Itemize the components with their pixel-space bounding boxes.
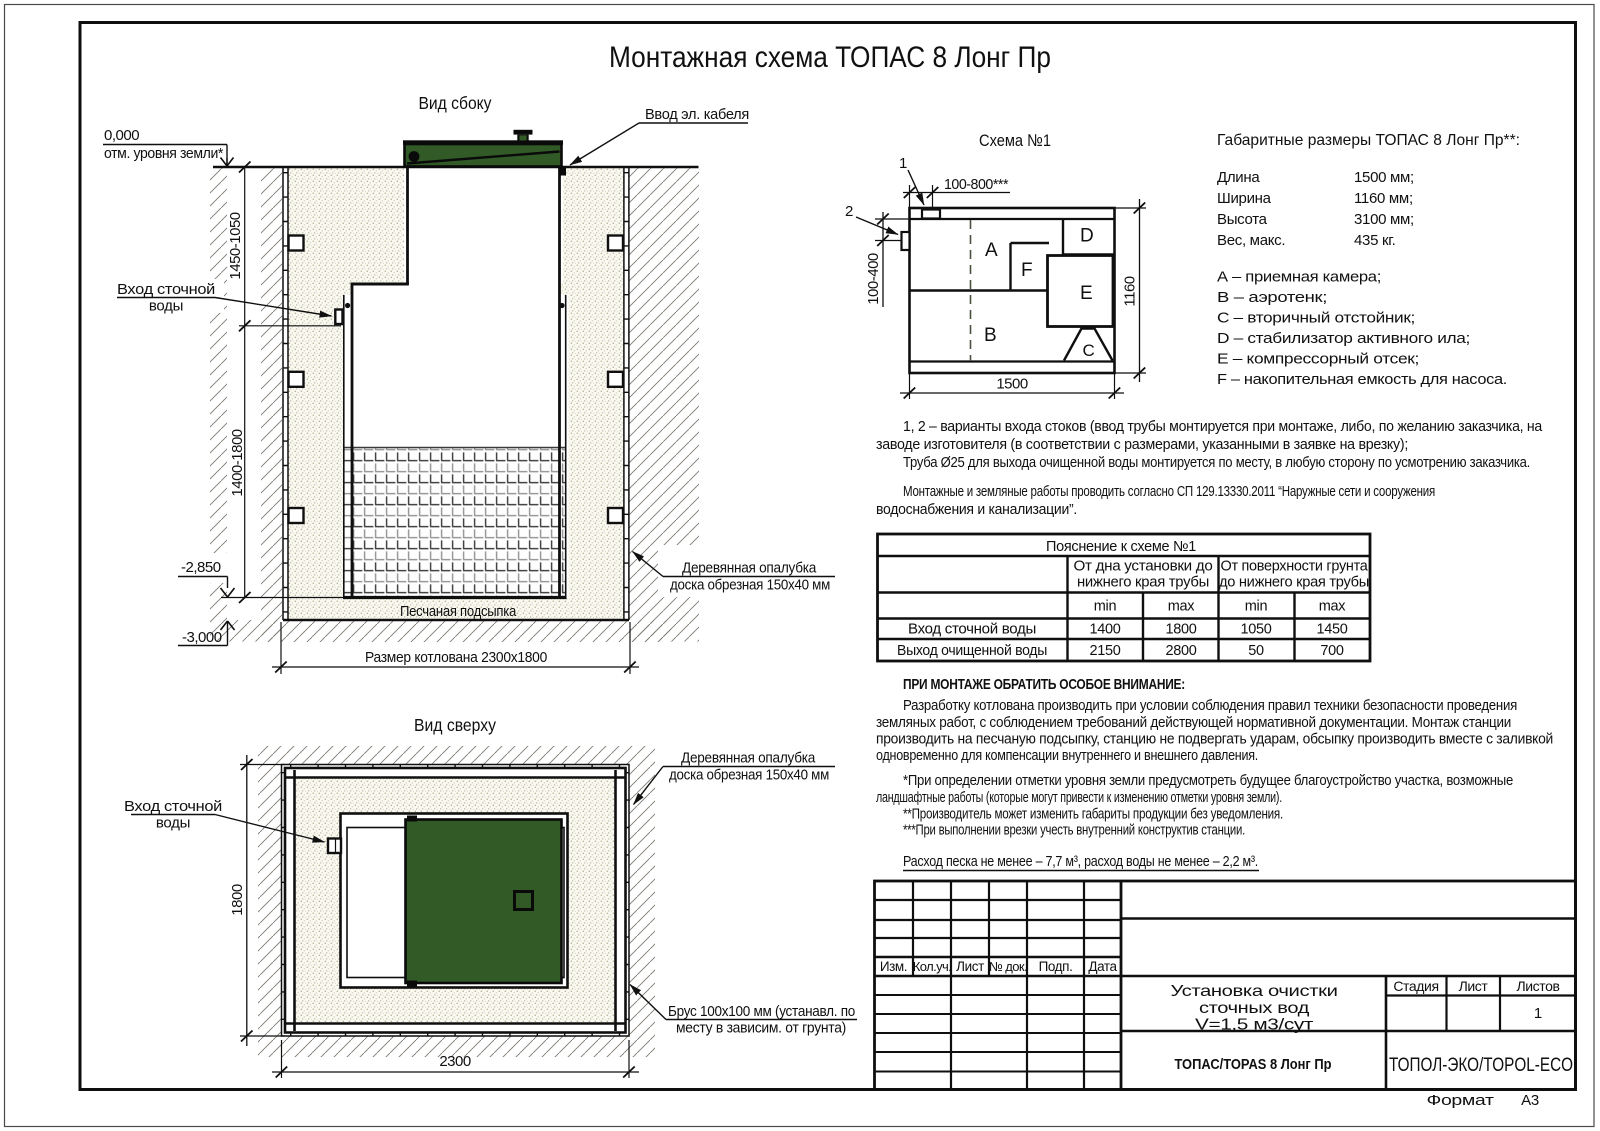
svg-text:1: 1 bbox=[1534, 1005, 1542, 1022]
svg-text:В – аэротенк;: В – аэротенк; bbox=[1217, 289, 1327, 306]
svg-text:ТОПОЛ-ЭКО/TOPOL-ECO: ТОПОЛ-ЭКО/TOPOL-ECO bbox=[1389, 1054, 1573, 1076]
svg-text:месту в зависим. от грунта): месту в зависим. от грунта) bbox=[676, 1020, 846, 1037]
svg-text:доска обрезная 150х40 мм: доска обрезная 150х40 мм bbox=[670, 577, 830, 594]
svg-text:50: 50 bbox=[1248, 643, 1264, 659]
svg-text:От поверхности грунта: От поверхности грунта bbox=[1221, 559, 1369, 575]
svg-text:3100 мм;: 3100 мм; bbox=[1354, 211, 1414, 228]
svg-text:1160: 1160 bbox=[1122, 276, 1139, 306]
svg-text:до нижнего края трубы: до нижнего края трубы bbox=[1219, 575, 1369, 591]
svg-text:№ док.: № док. bbox=[989, 959, 1027, 974]
svg-text:отм. уровня земли*: отм. уровня земли* bbox=[104, 146, 224, 162]
svg-text:1500: 1500 bbox=[996, 376, 1028, 393]
svg-text:D – стабилизатор активного ила: D – стабилизатор активного ила; bbox=[1217, 330, 1470, 347]
svg-text:-3,000: -3,000 bbox=[182, 629, 222, 646]
svg-text:1800: 1800 bbox=[1165, 622, 1196, 638]
svg-text:водоснабжения и канализации”.: водоснабжения и канализации”. bbox=[876, 501, 1077, 518]
svg-text:Вид сверху: Вид сверху bbox=[414, 715, 496, 735]
svg-text:V=1,5 м3/сут: V=1,5 м3/сут bbox=[1195, 1017, 1314, 1034]
svg-text:Вход сточной: Вход сточной bbox=[124, 798, 222, 815]
svg-text:С – вторичный отстойник;: С – вторичный отстойник; bbox=[1217, 310, 1415, 327]
svg-text:1800: 1800 bbox=[229, 884, 246, 916]
svg-text:max: max bbox=[1168, 599, 1196, 615]
svg-text:Лист: Лист bbox=[1459, 978, 1489, 994]
svg-text:0,000: 0,000 bbox=[104, 127, 139, 144]
svg-text:B: B bbox=[984, 325, 997, 346]
svg-text:Разработку котлована производи: Разработку котлована производить при усл… bbox=[903, 697, 1517, 714]
svg-text:Выход очищенной воды: Выход очищенной воды bbox=[897, 643, 1047, 659]
svg-text:1450: 1450 bbox=[1316, 622, 1347, 638]
svg-text:1160 мм;: 1160 мм; bbox=[1354, 190, 1413, 207]
svg-text:Листов: Листов bbox=[1516, 978, 1559, 994]
svg-text:Формат: Формат bbox=[1427, 1092, 1495, 1109]
svg-text:Деревянная опалубка: Деревянная опалубка bbox=[681, 750, 816, 767]
svg-text:2: 2 bbox=[845, 203, 853, 220]
svg-text:Установка очистки: Установка очистки bbox=[1171, 983, 1338, 1000]
svg-text:C: C bbox=[1083, 341, 1095, 360]
svg-text:max: max bbox=[1319, 599, 1347, 615]
svg-text:D: D bbox=[1080, 226, 1094, 247]
svg-text:ТОПАС/TOPAS 8 Лонг Пр: ТОПАС/TOPAS 8 Лонг Пр bbox=[1175, 1056, 1332, 1073]
svg-text:доска обрезная 150х40 мм: доска обрезная 150х40 мм bbox=[669, 767, 829, 784]
svg-text:1400-1800: 1400-1800 bbox=[229, 429, 246, 496]
svg-text:***При выполнении врезки учест: ***При выполнении врезки учесть внутренн… bbox=[903, 822, 1245, 839]
svg-text:min: min bbox=[1245, 599, 1268, 615]
svg-text:100-800***: 100-800*** bbox=[944, 176, 1009, 193]
svg-text:Монтажные и земляные работы пр: Монтажные и земляные работы проводить со… bbox=[903, 483, 1435, 500]
svg-text:Размер котлована 2300х1800: Размер котлована 2300х1800 bbox=[365, 649, 547, 666]
svg-text:Монтажная схема ТОПАС 8 Лонг П: Монтажная схема ТОПАС 8 Лонг Пр bbox=[609, 41, 1051, 74]
svg-text:Вес, макс.: Вес, макс. bbox=[1217, 232, 1285, 249]
svg-text:435 кг.: 435 кг. bbox=[1354, 232, 1395, 249]
svg-text:Вход сточной воды: Вход сточной воды bbox=[908, 622, 1036, 638]
svg-text:1050: 1050 bbox=[1240, 622, 1271, 638]
svg-text:ландшафтные работы (которые мо: ландшафтные работы (которые могут привес… bbox=[876, 789, 1282, 806]
svg-text:А3: А3 bbox=[1521, 1092, 1539, 1109]
svg-text:Высота: Высота bbox=[1217, 211, 1268, 228]
svg-text:Стадия: Стадия bbox=[1393, 978, 1438, 994]
svg-text:земляных работ, с соблюдением: земляных работ, с соблюдением требований… bbox=[876, 714, 1511, 731]
svg-text:2300: 2300 bbox=[439, 1053, 471, 1070]
svg-text:нижнего края трубы: нижнего края трубы bbox=[1077, 575, 1209, 591]
svg-text:Ввод эл. кабеля: Ввод эл. кабеля bbox=[645, 106, 749, 123]
svg-text:Изм.: Изм. bbox=[880, 959, 907, 974]
svg-text:Труба Ø25 для выхода очищенной: Труба Ø25 для выхода очищенной воды монт… bbox=[903, 454, 1530, 471]
svg-text:F – накопительная емкость для: F – накопительная емкость для насоса. bbox=[1217, 371, 1507, 388]
svg-text:*При определении отметки уровн: *При определении отметки уровня земли пр… bbox=[903, 772, 1513, 789]
svg-text:1400: 1400 bbox=[1089, 622, 1120, 638]
svg-text:Деревянная опалубка: Деревянная опалубка bbox=[682, 560, 817, 577]
svg-text:Песчаная подсыпка: Песчаная подсыпка bbox=[400, 603, 517, 620]
svg-text:Брус 100х100 мм (устанавл. по: Брус 100х100 мм (устанавл. по bbox=[668, 1003, 855, 1020]
svg-text:производить на песчаную подсып: производить на песчаную подсыпку, станци… bbox=[876, 731, 1553, 748]
svg-text:1450-1050: 1450-1050 bbox=[227, 212, 244, 279]
svg-text:-2,850: -2,850 bbox=[181, 559, 221, 576]
svg-text:Габаритные размеры ТОПАС 8 Лон: Габаритные размеры ТОПАС 8 Лонг Пр**: bbox=[1217, 132, 1520, 149]
svg-text:Дата: Дата bbox=[1088, 959, 1117, 974]
svg-text:Е – компрессорный отсек;: Е – компрессорный отсек; bbox=[1217, 351, 1419, 368]
svg-text:100-400: 100-400 bbox=[865, 253, 882, 305]
svg-text:2800: 2800 bbox=[1165, 643, 1196, 659]
svg-text:От дна установки до: От дна установки до bbox=[1074, 559, 1213, 575]
svg-text:воды: воды bbox=[149, 298, 183, 315]
svg-text:min: min bbox=[1094, 599, 1117, 615]
svg-text:700: 700 bbox=[1320, 643, 1344, 659]
svg-text:Вид сбоку: Вид сбоку bbox=[419, 93, 492, 113]
svg-text:E: E bbox=[1080, 283, 1093, 304]
svg-text:Кол.уч.: Кол.уч. bbox=[913, 959, 951, 974]
svg-text:1500 мм;: 1500 мм; bbox=[1354, 169, 1414, 186]
svg-text:одновременно для компенсации в: одновременно для компенсации внутреннего… bbox=[876, 747, 1258, 764]
svg-text:А – приемная камера;: А – приемная камера; bbox=[1217, 269, 1381, 286]
svg-text:Расход песка не менее – 7,7 м³: Расход песка не менее – 7,7 м³, расход в… bbox=[903, 853, 1258, 870]
svg-text:**Производитель может изменить: **Производитель может изменить габариты … bbox=[903, 806, 1283, 823]
svg-text:Пояснение к схеме №1: Пояснение к схеме №1 bbox=[1046, 539, 1196, 555]
svg-text:1: 1 bbox=[899, 155, 907, 172]
svg-text:Лист: Лист bbox=[956, 959, 984, 974]
svg-text:Длина: Длина bbox=[1217, 169, 1260, 186]
svg-text:ПРИ МОНТАЖЕ ОБРАТИТЬ ОСОБОЕ ВН: ПРИ МОНТАЖЕ ОБРАТИТЬ ОСОБОЕ ВНИМАНИЕ: bbox=[903, 676, 1185, 693]
svg-text:Схема №1: Схема №1 bbox=[979, 131, 1051, 150]
svg-text:Ширина: Ширина bbox=[1217, 190, 1272, 207]
svg-text:F: F bbox=[1021, 260, 1033, 281]
svg-text:1, 2 – варианты входа стоков: 1, 2 – варианты входа стоков (ввод трубы… bbox=[903, 418, 1543, 435]
svg-text:Подп.: Подп. bbox=[1039, 959, 1073, 974]
svg-text:Вход сточной: Вход сточной bbox=[117, 281, 215, 298]
svg-text:A: A bbox=[985, 240, 998, 261]
svg-text:воды: воды bbox=[156, 815, 190, 832]
svg-text:2150: 2150 bbox=[1089, 643, 1120, 659]
svg-text:заводе изготовителя (в соответ: заводе изготовителя (в соответствии с ра… bbox=[876, 436, 1408, 453]
svg-text:сточных вод: сточных вод bbox=[1199, 1000, 1310, 1017]
